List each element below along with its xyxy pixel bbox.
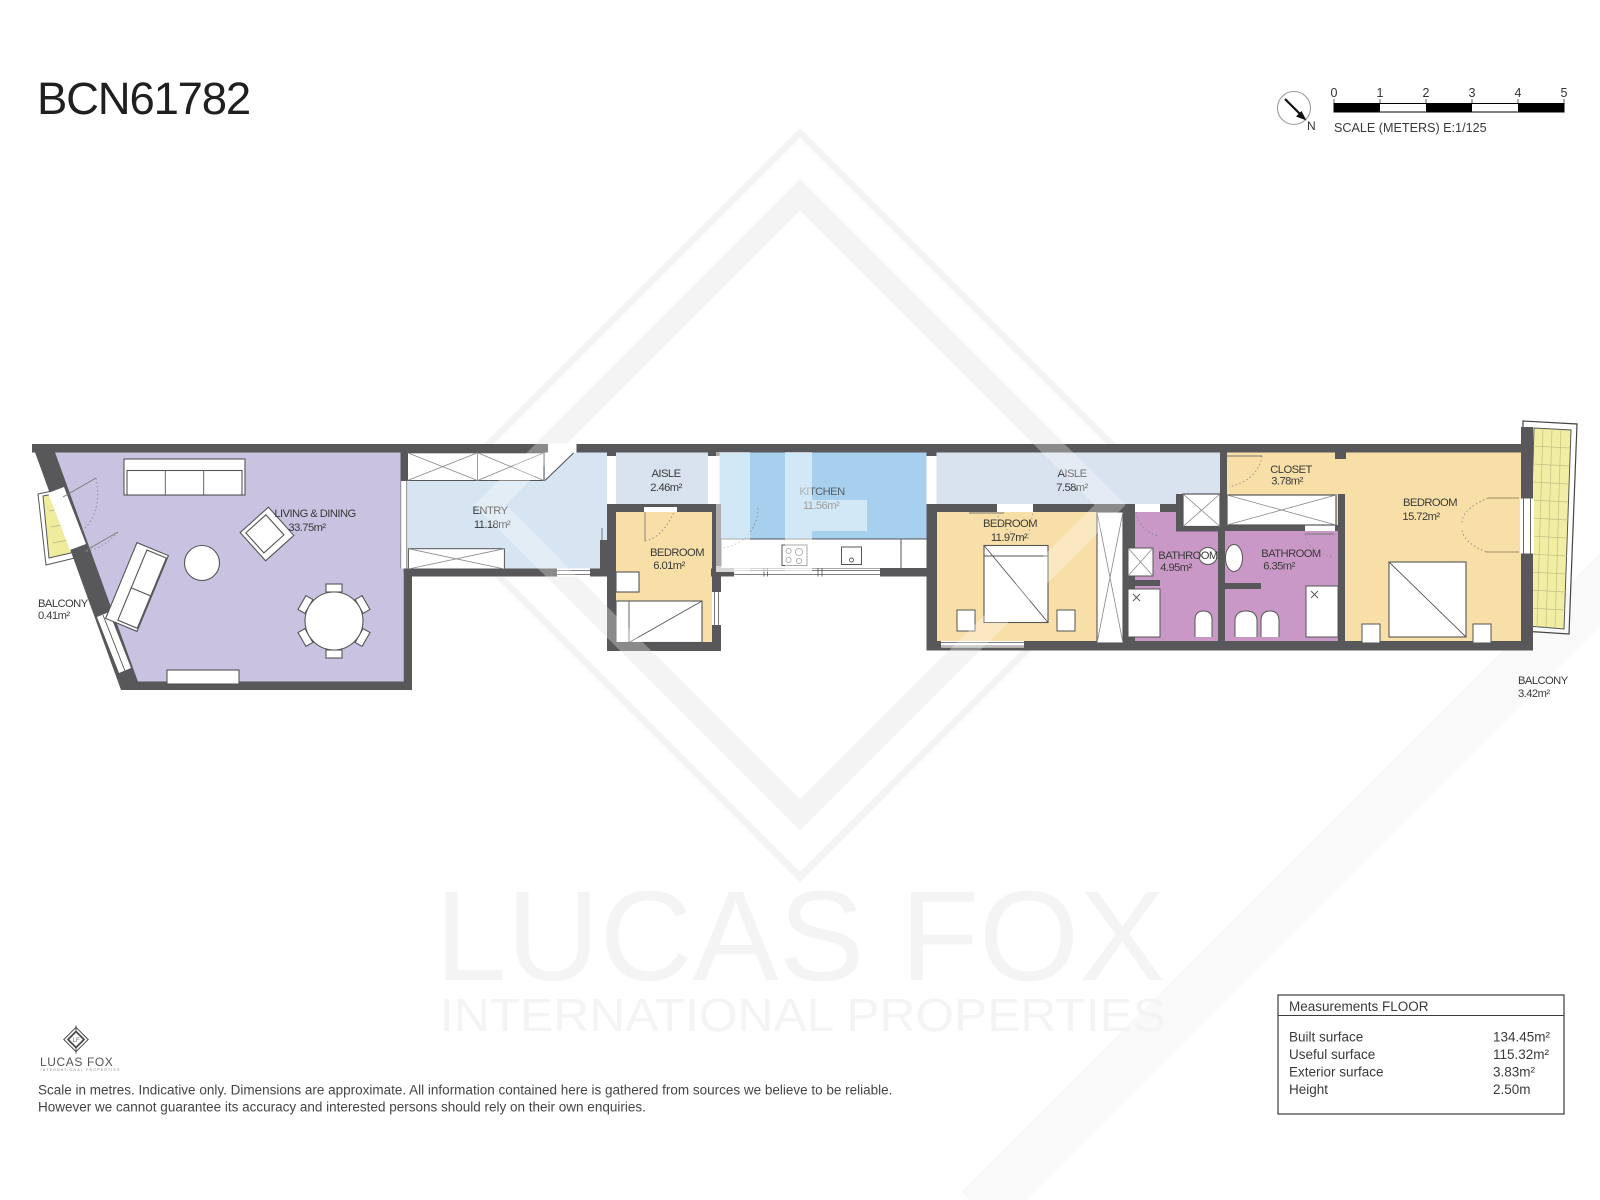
svg-text:BEDROOM: BEDROOM [1403,497,1457,509]
svg-text:Scale in metres. Indicative on: Scale in metres. Indicative only. Dimens… [38,1083,892,1098]
svg-text:1: 1 [1377,86,1384,100]
svg-text:Height: Height [1289,1082,1328,1097]
svg-text:SCALE (METERS) E:1/125: SCALE (METERS) E:1/125 [1334,121,1487,135]
svg-text:AISLE: AISLE [652,468,681,480]
svg-text:BALCONY: BALCONY [38,598,89,610]
svg-text:115.32m²: 115.32m² [1493,1047,1550,1062]
svg-text:LIVING & DINING: LIVING & DINING [274,508,355,520]
svg-text:LUCAS FOX: LUCAS FOX [435,865,1165,1008]
svg-text:BCN61782: BCN61782 [37,73,250,124]
svg-text:LF: LF [72,1038,79,1044]
svg-text:N: N [1307,119,1316,133]
svg-text:2: 2 [1423,86,1430,100]
svg-text:6.35m²: 6.35m² [1263,561,1295,573]
svg-text:BEDROOM: BEDROOM [983,518,1037,530]
svg-text:INTERNATIONAL PROPERTIES: INTERNATIONAL PROPERTIES [440,989,1166,1041]
svg-text:4: 4 [1515,86,1522,100]
svg-text:Exterior surface: Exterior surface [1289,1065,1384,1080]
svg-text:3.83m²: 3.83m² [1493,1065,1536,1080]
svg-text:0: 0 [1331,86,1338,100]
svg-text:33.75m²: 33.75m² [288,522,326,534]
svg-text:6.01m²: 6.01m² [653,560,685,572]
svg-text:BATHROOM: BATHROOM [1158,550,1218,562]
svg-text:2.46m²: 2.46m² [650,482,682,494]
svg-text:11.97m²: 11.97m² [991,532,1028,544]
svg-text:However we cannot guarantee it: However we cannot guarantee its accuracy… [38,1100,646,1115]
svg-text:3.42m²: 3.42m² [1518,688,1550,700]
svg-text:134.45m²: 134.45m² [1493,1030,1551,1045]
svg-text:BALCONY: BALCONY [1518,675,1569,687]
svg-text:Useful surface: Useful surface [1289,1047,1375,1062]
svg-text:4.95m²: 4.95m² [1160,562,1192,574]
svg-text:BEDROOM: BEDROOM [650,547,704,559]
svg-text:3.78m²: 3.78m² [1271,476,1303,488]
svg-text:0.41m²: 0.41m² [38,610,70,622]
svg-text:CLOSET: CLOSET [1270,464,1312,476]
svg-text:2.50m: 2.50m [1493,1082,1531,1097]
svg-text:5: 5 [1561,86,1568,100]
svg-text:INTERNATIONAL PROPERTIES: INTERNATIONAL PROPERTIES [41,1068,121,1072]
svg-text:BATHROOM: BATHROOM [1261,548,1321,560]
svg-text:Measurements FLOOR: Measurements FLOOR [1289,999,1429,1014]
svg-text:Built surface: Built surface [1289,1030,1363,1045]
svg-text:15.72m²: 15.72m² [1402,511,1440,523]
svg-text:3: 3 [1469,86,1476,100]
